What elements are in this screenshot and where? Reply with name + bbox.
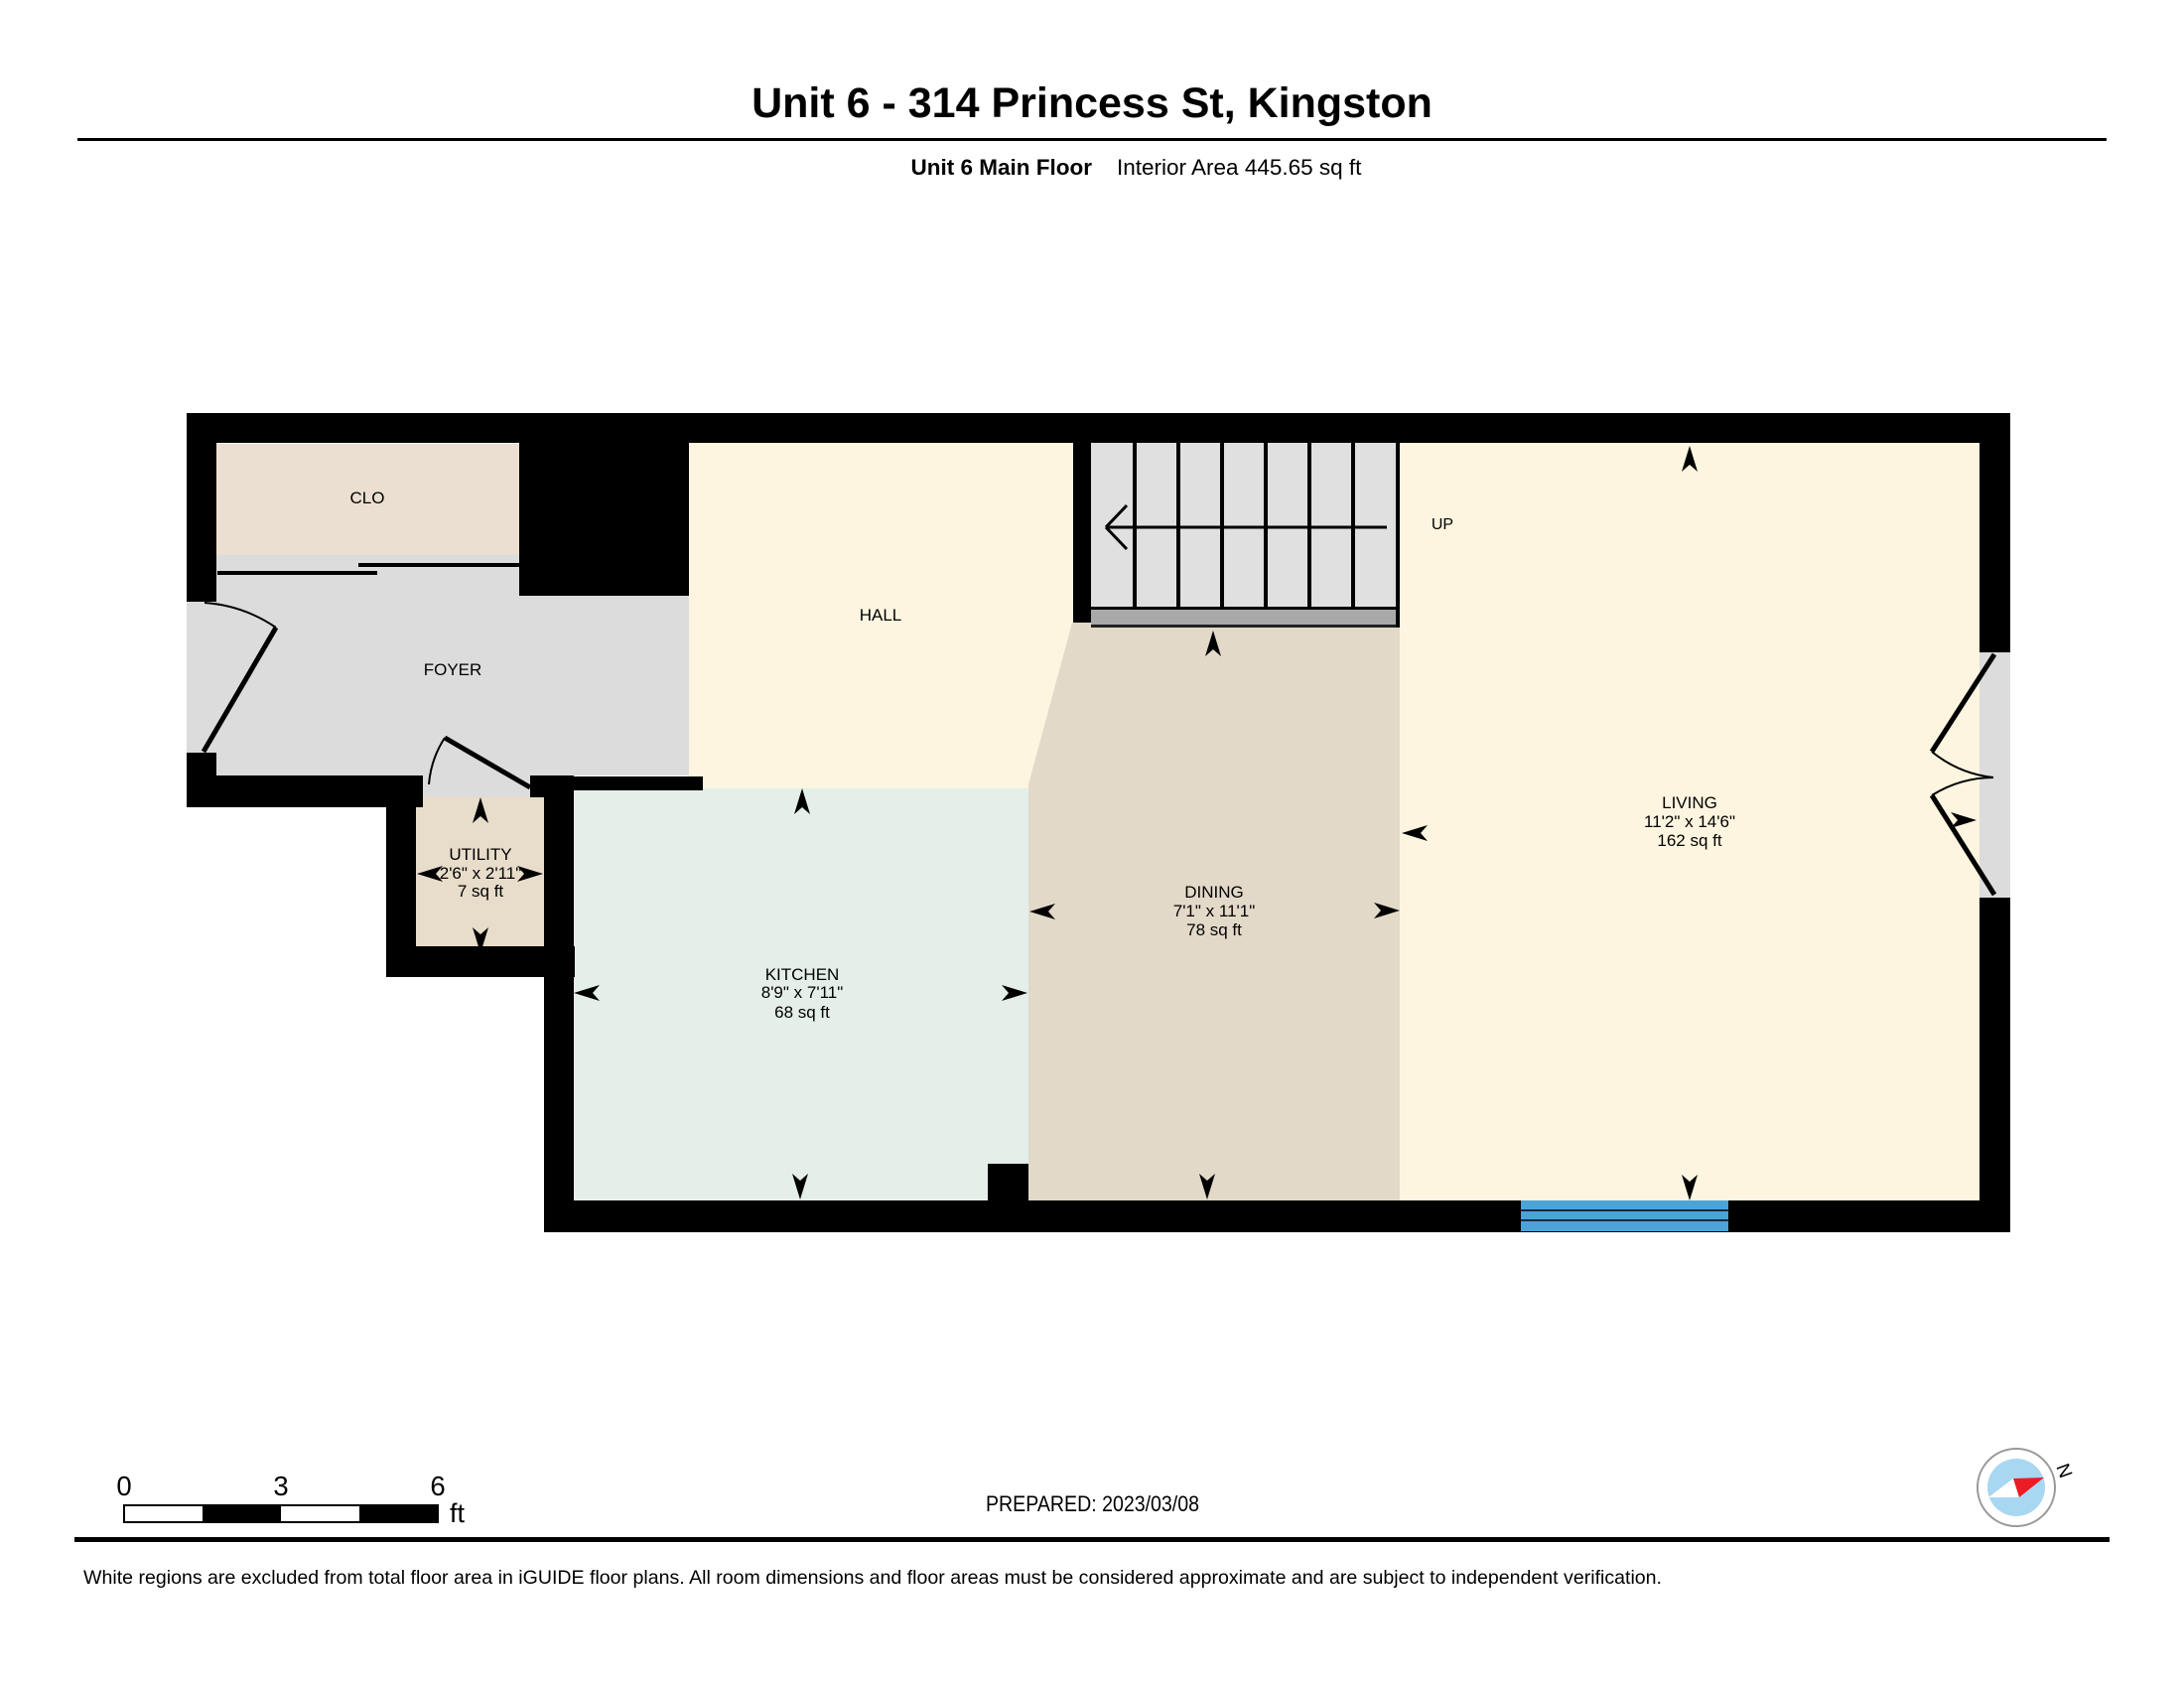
svg-text:KITCHEN: KITCHEN — [765, 965, 840, 984]
svg-text:PREPARED: 2023/03/08: PREPARED: 2023/03/08 — [986, 1491, 1199, 1516]
svg-text:CLO: CLO — [350, 489, 385, 507]
svg-text:White regions are excluded fro: White regions are excluded from total fl… — [83, 1567, 1662, 1589]
svg-text:LIVING: LIVING — [1662, 793, 1717, 812]
svg-text:8'9" x 7'11": 8'9" x 7'11" — [761, 983, 844, 1002]
svg-text:78 sq ft: 78 sq ft — [1186, 920, 1242, 939]
svg-text:UTILITY: UTILITY — [449, 845, 511, 864]
svg-text:162 sq ft: 162 sq ft — [1657, 831, 1721, 850]
svg-text:N: N — [2051, 1461, 2075, 1480]
svg-text:7'1" x 11'1": 7'1" x 11'1" — [1173, 902, 1256, 920]
svg-text:3: 3 — [273, 1471, 288, 1501]
svg-text:ft: ft — [450, 1498, 466, 1528]
svg-text:HALL: HALL — [860, 606, 902, 625]
svg-text:68 sq ft: 68 sq ft — [774, 1003, 830, 1022]
svg-text:6: 6 — [430, 1471, 445, 1501]
svg-text:2'6" x 2'11": 2'6" x 2'11" — [440, 864, 522, 883]
svg-text:DINING: DINING — [1184, 883, 1244, 902]
svg-text:11'2" x 14'6": 11'2" x 14'6" — [1644, 812, 1735, 831]
svg-text:UP: UP — [1432, 516, 1453, 533]
svg-text:7 sq ft: 7 sq ft — [458, 882, 504, 901]
svg-text:FOYER: FOYER — [424, 660, 482, 679]
svg-text:0: 0 — [116, 1471, 131, 1501]
